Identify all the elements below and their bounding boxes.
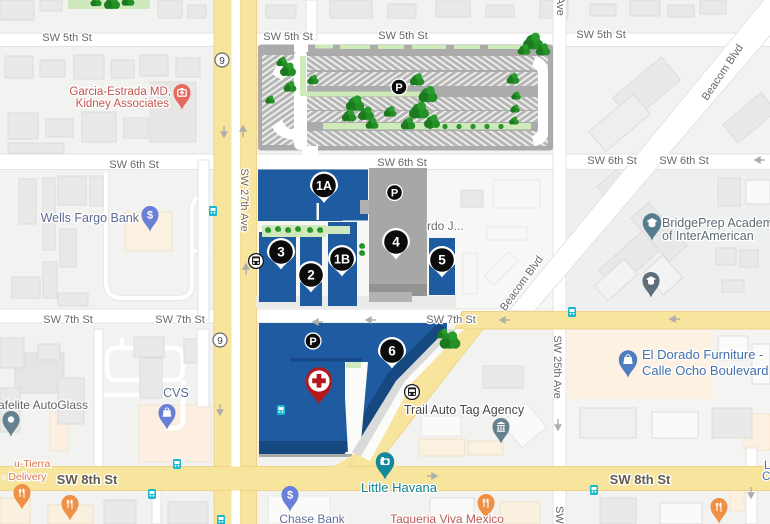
- svg-text:SW 27th Ave: SW 27th Ave: [238, 168, 250, 231]
- svg-text:Chase Bank: Chase Bank: [279, 512, 345, 524]
- svg-text:rdo J...: rdo J...: [427, 219, 464, 233]
- svg-text:SW 5th St: SW 5th St: [263, 31, 313, 43]
- svg-text:SW 8th St: SW 8th St: [610, 472, 671, 487]
- svg-text:SW 5th St: SW 5th St: [42, 32, 92, 44]
- svg-text:Safelite AutoGlass: Safelite AutoGlass: [0, 398, 88, 412]
- svg-text:Kidney Associates: Kidney Associates: [76, 98, 170, 110]
- svg-text:SW 25th Ave: SW 25th Ave: [551, 335, 563, 398]
- svg-text:Garcia-Estrada MD,: Garcia-Estrada MD,: [69, 86, 171, 98]
- svg-text:El Dorado Furniture -: El Dorado Furniture -: [642, 347, 763, 362]
- svg-text:SW 25: SW 25: [553, 506, 565, 524]
- svg-text:SW 6th St: SW 6th St: [659, 155, 709, 167]
- svg-text:Trail Auto Tag Agency: Trail Auto Tag Agency: [404, 403, 525, 417]
- svg-text:9: 9: [217, 336, 223, 347]
- svg-text:5: 5: [438, 253, 446, 268]
- svg-text:3: 3: [277, 245, 285, 260]
- svg-text:Ca: Ca: [762, 471, 770, 483]
- svg-text:Taqueria Viva Mexico: Taqueria Viva Mexico: [390, 512, 504, 524]
- svg-text:4: 4: [392, 235, 400, 250]
- svg-text:CVS: CVS: [163, 386, 189, 400]
- svg-text:SW 6th St: SW 6th St: [109, 159, 159, 171]
- svg-text:SW 6th St: SW 6th St: [587, 155, 637, 167]
- svg-text:· Delivery: · Delivery: [2, 471, 47, 483]
- svg-text:1B: 1B: [334, 253, 350, 267]
- svg-text:of InterAmerican: of InterAmerican: [662, 229, 754, 243]
- svg-text:BridgePrep Academy: BridgePrep Academy: [662, 216, 770, 230]
- svg-text:SW 8th St: SW 8th St: [57, 472, 118, 487]
- svg-text:SW 25th Ave: SW 25th Ave: [554, 0, 566, 16]
- svg-text:Little Havana: Little Havana: [361, 480, 438, 495]
- svg-text:SW 5th St: SW 5th St: [576, 29, 626, 41]
- svg-text:SW 7th St: SW 7th St: [43, 314, 93, 326]
- svg-text:Calle Ocho Boulevard: Calle Ocho Boulevard: [642, 363, 768, 378]
- svg-text:1A: 1A: [316, 179, 332, 193]
- svg-text:9: 9: [219, 56, 225, 67]
- svg-text:SW 7th St: SW 7th St: [426, 314, 476, 326]
- svg-text:6: 6: [388, 344, 396, 359]
- svg-text:Wells Fargo Bank: Wells Fargo Bank: [41, 211, 140, 225]
- svg-text:SW 7th St: SW 7th St: [155, 314, 205, 326]
- svg-text:SW 5th St: SW 5th St: [378, 30, 428, 42]
- svg-text:SW 6th St: SW 6th St: [377, 157, 427, 169]
- svg-text:$: $: [147, 210, 153, 222]
- svg-text:2: 2: [307, 268, 315, 283]
- svg-text:u-Tierra: u-Tierra: [14, 458, 51, 470]
- svg-text:$: $: [287, 490, 293, 502]
